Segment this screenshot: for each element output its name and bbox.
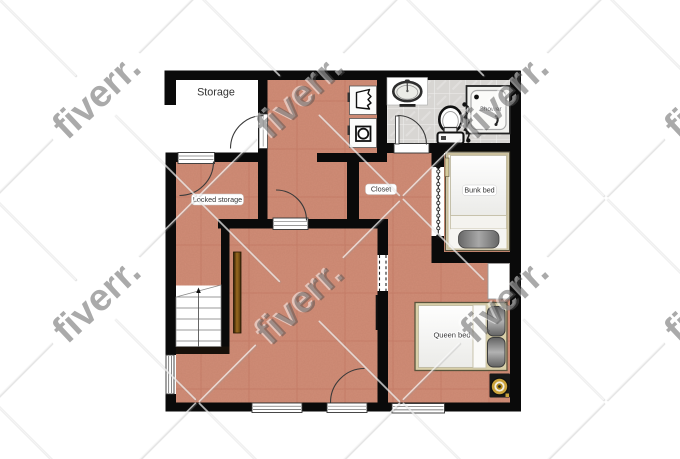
svg-text:Storage: Storage [197, 87, 235, 99]
svg-text:Bunk bed: Bunk bed [464, 186, 494, 195]
